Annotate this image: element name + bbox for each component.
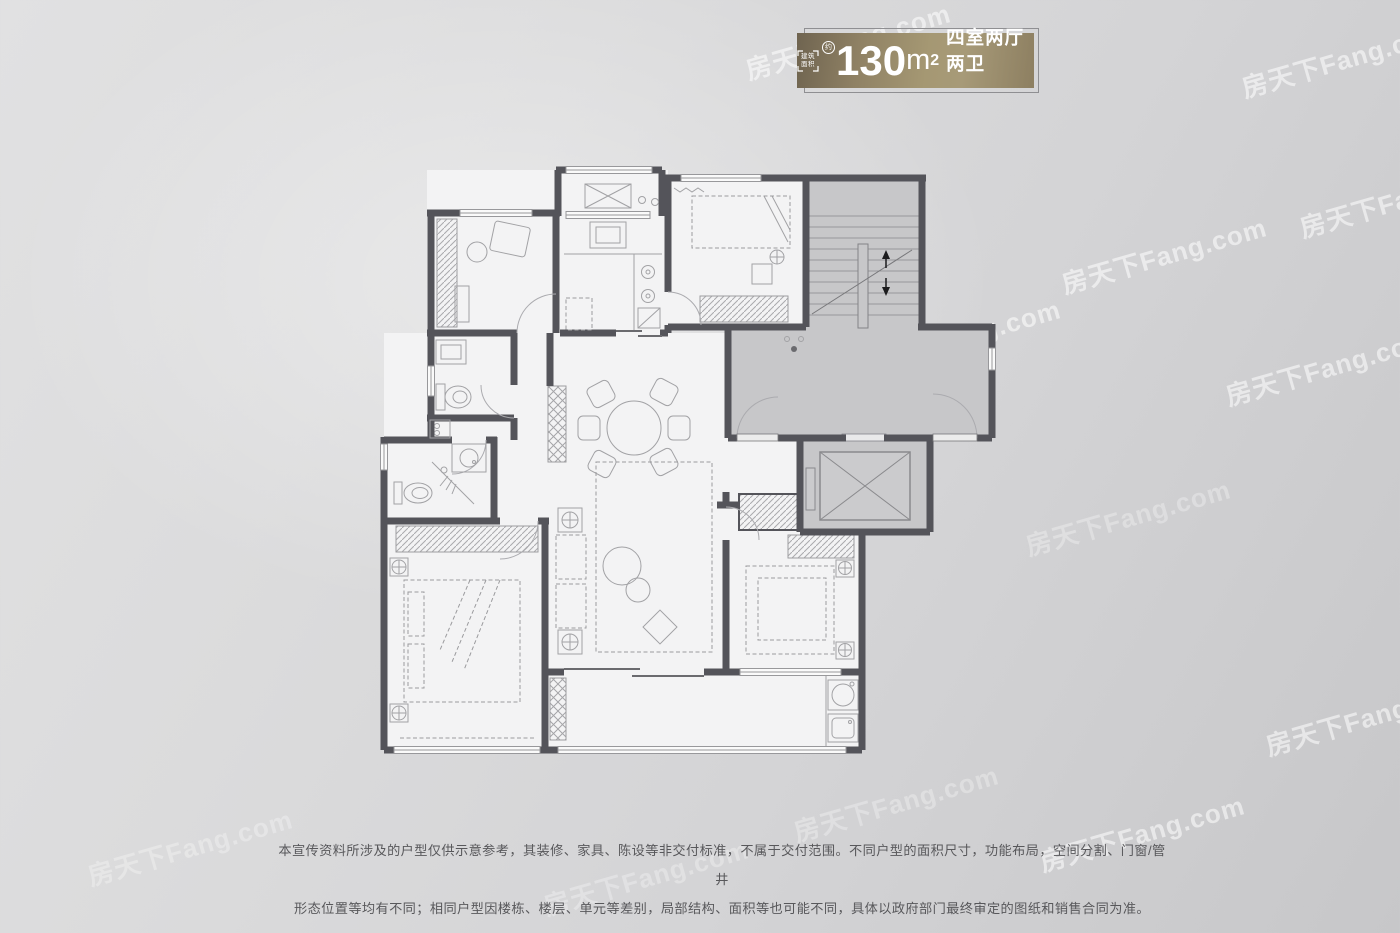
watermark: 房天下Fang.com: [1237, 12, 1400, 106]
wardrobe-master: [396, 526, 538, 552]
floor-plan-image: [378, 156, 1006, 767]
disclaimer-line-1: 本宣传资料所涉及的户型仅供示意参考，其装修、家具、陈设等非交付标准，不属于交付范…: [272, 836, 1172, 894]
disclaimer: 本宣传资料所涉及的户型仅供示意参考，其装修、家具、陈设等非交付标准，不属于交付范…: [272, 836, 1172, 923]
area-unit: m: [906, 46, 930, 75]
watermark: 房天下Fang.com: [1057, 208, 1271, 302]
area-bracket-icon: 建筑面积: [797, 50, 819, 72]
watermark: 房天下Fang.com: [1261, 670, 1400, 764]
floor-plan-svg: [378, 156, 1006, 762]
area-value: 130: [836, 40, 906, 82]
wardrobe-bedroom-tr: [700, 296, 788, 322]
approx-circle: 约: [822, 41, 835, 54]
watermark: 房天下Fang.com: [1221, 320, 1400, 414]
watermark: 房天下Fang.com: [1021, 470, 1235, 564]
column-dining: [548, 386, 566, 462]
pipe-shaft: [739, 494, 798, 530]
area-label: 建筑面积: [800, 53, 816, 69]
area-unit-sup: 2: [930, 53, 939, 69]
wardrobe-bedroom-br: [788, 535, 854, 558]
area-badge: 建筑面积 约 130 m 2 四室两厅两卫: [797, 33, 1034, 88]
page: { "badge": { "area_label": "建筑面积", "appr…: [0, 0, 1400, 933]
neighbor-door-panel: [933, 434, 977, 441]
wardrobe-top-left: [437, 219, 457, 327]
watermark: 房天下Fang.com: [83, 800, 297, 894]
room-layout-text: 四室两厅两卫: [946, 24, 1034, 76]
column-balcony: [550, 678, 566, 740]
entry-door-panel: [737, 434, 778, 441]
public-corridor: [728, 327, 992, 438]
disclaimer-line-2: 形态位置等均有不同；相同户型因楼栋、楼层、单元等差别，局部结构、面积等也可能不同…: [272, 894, 1172, 923]
watermark: 房天下Fang.com: [1295, 152, 1400, 246]
